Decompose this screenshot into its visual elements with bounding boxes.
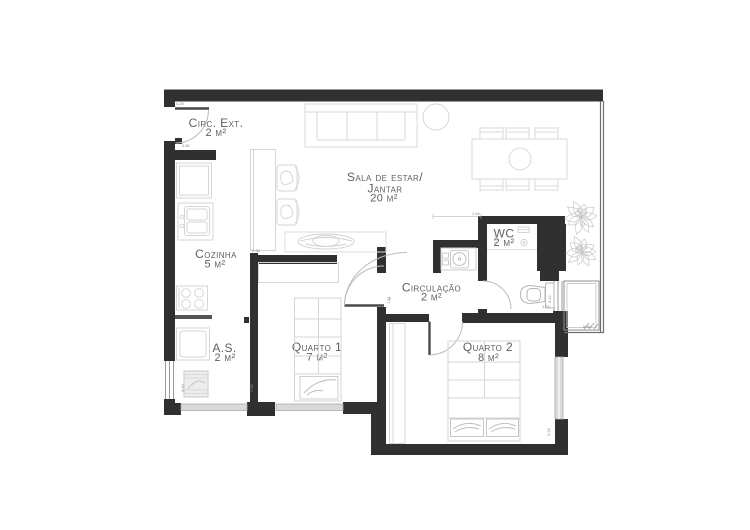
svg-text:2 m²: 2 m² <box>421 292 442 304</box>
svg-text:2.98: 2.98 <box>252 248 261 253</box>
svg-text:1.63: 1.63 <box>542 304 551 309</box>
svg-text:2 m²: 2 m² <box>205 127 226 139</box>
svg-text:0.60: 0.60 <box>180 383 185 392</box>
svg-text:1.84: 1.84 <box>472 211 481 216</box>
svg-text:2.56: 2.56 <box>249 383 254 392</box>
svg-text:3.34: 3.34 <box>546 427 551 436</box>
svg-text:2 m²: 2 m² <box>214 352 235 364</box>
svg-text:7 m²: 7 m² <box>306 352 327 364</box>
svg-text:0.80: 0.80 <box>182 143 191 148</box>
svg-text:4.28: 4.28 <box>176 101 185 106</box>
svg-text:0.34: 0.34 <box>583 324 592 329</box>
svg-text:0.42: 0.42 <box>547 294 552 303</box>
svg-text:20 m²: 20 m² <box>370 193 398 205</box>
svg-text:2.40: 2.40 <box>493 235 498 244</box>
svg-text:5 m²: 5 m² <box>204 259 225 271</box>
